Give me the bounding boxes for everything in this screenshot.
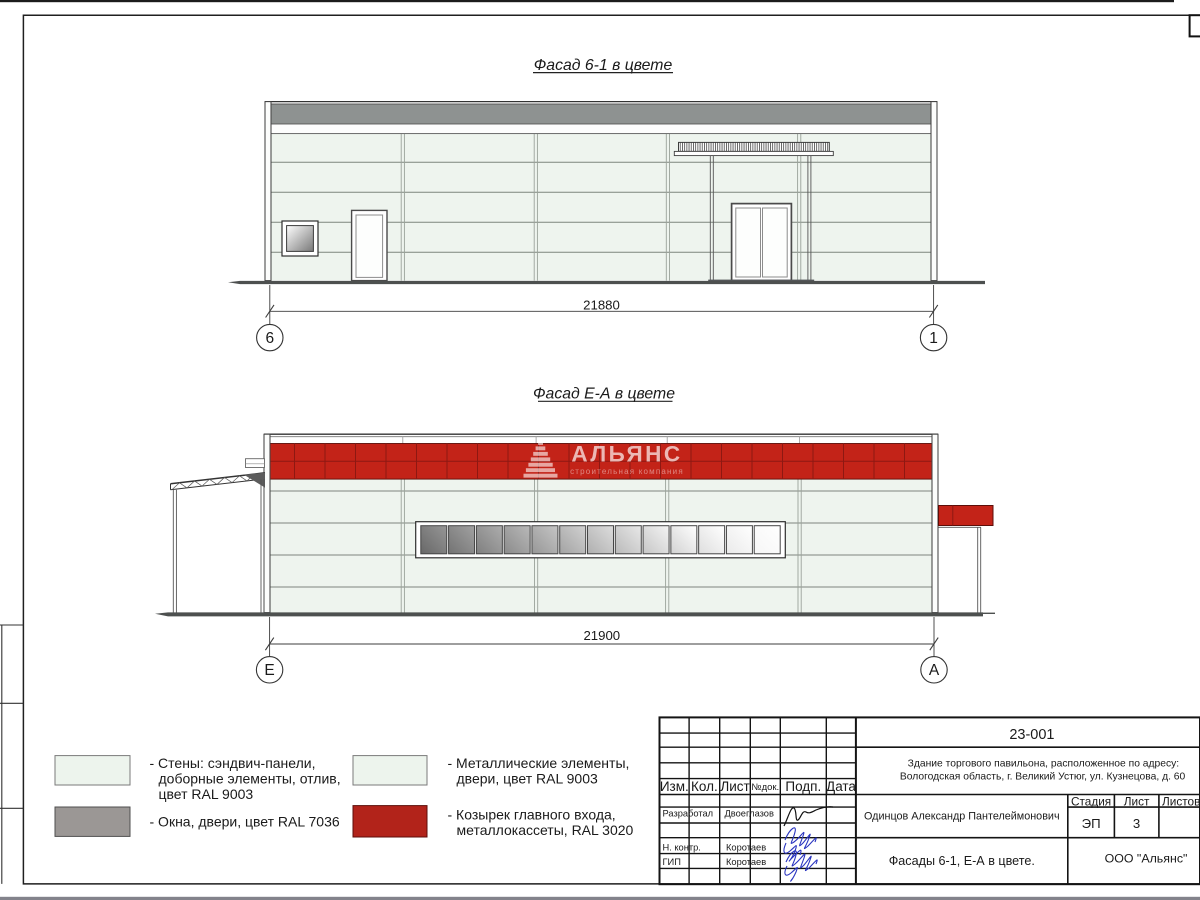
svg-text:Фасад Е-А в цвете: Фасад Е-А в цвете bbox=[533, 386, 675, 403]
svg-text:№док.: №док. bbox=[751, 782, 779, 793]
svg-text:Е: Е bbox=[264, 662, 274, 679]
svg-text:Фасад 6-1 в цвете: Фасад 6-1 в цвете bbox=[534, 57, 673, 74]
svg-text:Разработал: Разработал bbox=[663, 809, 714, 819]
svg-text:Двоеглазов: Двоеглазов bbox=[725, 809, 774, 819]
svg-text:1: 1 bbox=[929, 330, 938, 347]
svg-text:Подп.: Подп. bbox=[785, 779, 821, 794]
svg-text:- Металлические элементы,: - Металлические элементы, bbox=[448, 755, 630, 771]
svg-text:23-001: 23-001 bbox=[1009, 727, 1054, 743]
svg-text:Фасады 6-1, Е-А в цвете.: Фасады 6-1, Е-А в цвете. bbox=[889, 854, 1035, 868]
svg-text:Листов: Листов bbox=[1162, 795, 1200, 809]
svg-text:металлокассеты, RAL 3020: металлокассеты, RAL 3020 bbox=[457, 822, 634, 838]
svg-text:- Стены: сэндвич-панели,: - Стены: сэндвич-панели, bbox=[150, 755, 316, 771]
svg-text:Коротаев: Коротаев bbox=[726, 843, 766, 853]
svg-text:Стадия: Стадия bbox=[1071, 795, 1111, 809]
svg-text:Лист: Лист bbox=[1124, 795, 1150, 809]
svg-text:21880: 21880 bbox=[583, 297, 620, 312]
svg-text:3: 3 bbox=[1133, 816, 1140, 831]
svg-text:- Окна, двери, цвет RAL 7036: - Окна, двери, цвет RAL 7036 bbox=[150, 813, 340, 829]
svg-text:Дата: Дата bbox=[826, 779, 856, 794]
svg-text:Вологодская область, г. Велики: Вологодская область, г. Великий Устюг, у… bbox=[900, 771, 1186, 783]
svg-text:ГИП: ГИП bbox=[663, 857, 681, 867]
svg-text:Одинцов Александр Пантелеймоно: Одинцов Александр Пантелеймонович bbox=[864, 811, 1060, 823]
svg-text:Кол.: Кол. bbox=[691, 779, 718, 794]
svg-text:Здание торгового павильона, ра: Здание торгового павильона, расположенно… bbox=[908, 759, 1179, 770]
svg-text:двери, цвет RAL 9003: двери, цвет RAL 9003 bbox=[457, 771, 599, 787]
svg-text:строительная компания: строительная компания bbox=[570, 467, 684, 476]
svg-text:Н. контр.: Н. контр. bbox=[663, 843, 701, 853]
svg-text:Лист: Лист bbox=[720, 779, 749, 794]
svg-text:Коротаев: Коротаев bbox=[726, 857, 766, 867]
svg-text:ООО "Альянс": ООО "Альянс" bbox=[1105, 852, 1188, 866]
svg-text:ЭП: ЭП bbox=[1082, 816, 1101, 831]
svg-text:Изм.: Изм. bbox=[660, 779, 689, 794]
svg-text:доборные элементы, отлив,: доборные элементы, отлив, bbox=[159, 771, 341, 787]
svg-text:АЛЬЯНС: АЛЬЯНС bbox=[571, 442, 682, 467]
svg-text:6: 6 bbox=[265, 330, 274, 347]
svg-text:- Козырек главного входа,: - Козырек главного входа, bbox=[448, 806, 616, 822]
svg-text:цвет RAL 9003: цвет RAL 9003 bbox=[159, 786, 254, 802]
svg-text:21900: 21900 bbox=[583, 628, 620, 643]
svg-text:А: А bbox=[929, 662, 940, 679]
